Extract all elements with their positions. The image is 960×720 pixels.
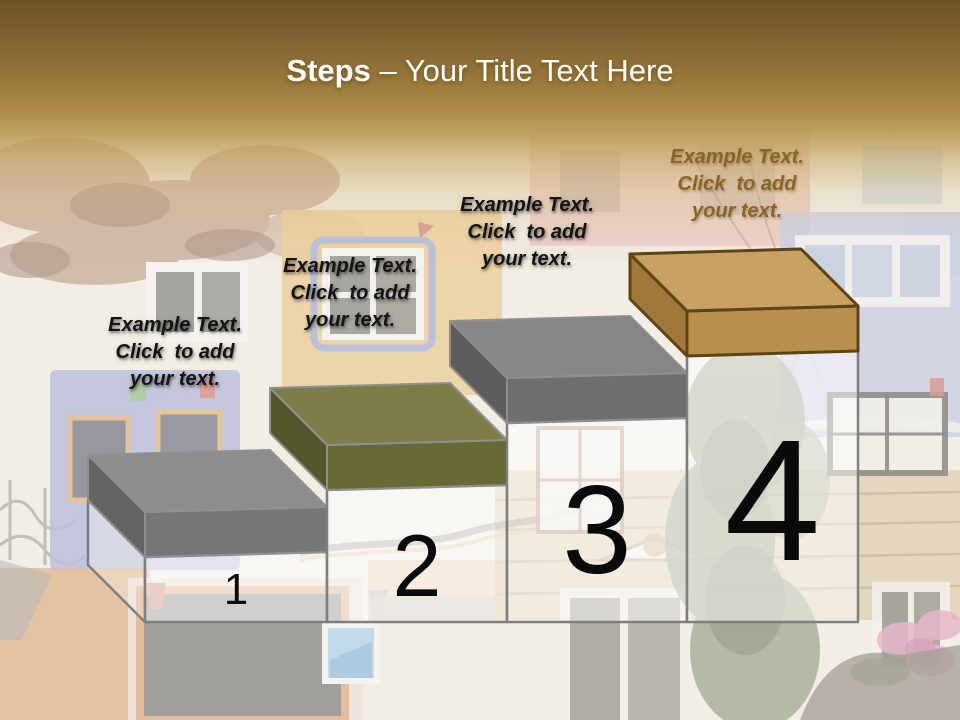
lid-front-face <box>327 440 507 490</box>
step-number: 2 <box>393 516 442 615</box>
step-number: 4 <box>724 403 820 597</box>
lid-front-face <box>687 306 858 356</box>
step-number: 3 <box>562 461 632 600</box>
lid-front-face <box>507 373 687 423</box>
slide: Steps – Your Title Text Here Example Tex… <box>0 0 960 720</box>
step-1: 1 <box>88 450 327 622</box>
steps-diagram: 1234 <box>0 0 960 720</box>
step-number: 1 <box>224 565 248 614</box>
lid-front-face <box>145 507 327 557</box>
